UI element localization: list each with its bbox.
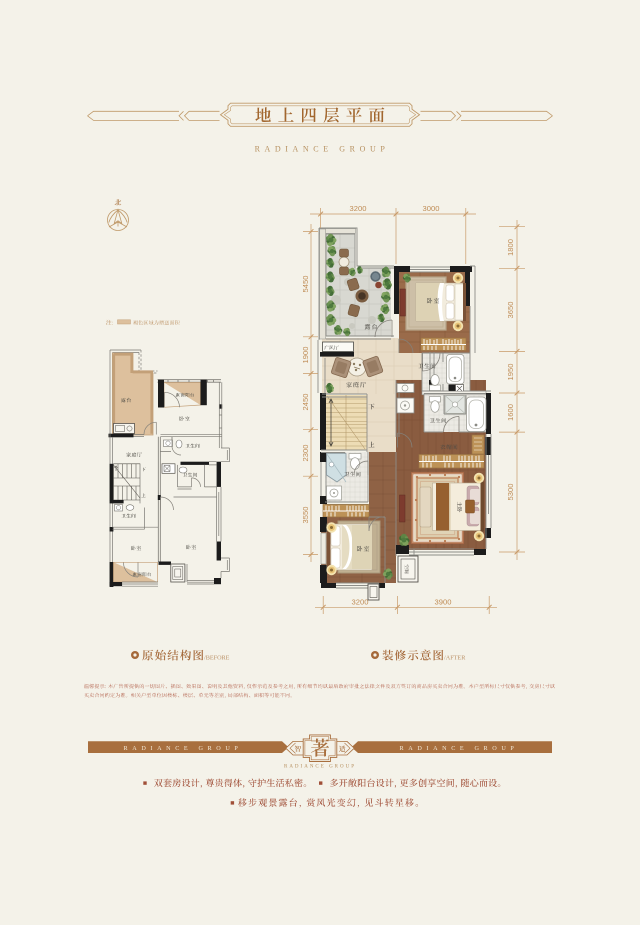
svg-text:3200: 3200 <box>352 598 369 607</box>
svg-text:RADIANCE GROUP: RADIANCE GROUP <box>255 145 390 154</box>
svg-text:2300: 2300 <box>301 445 310 462</box>
svg-text:1800: 1800 <box>506 239 515 256</box>
svg-text:/BEFORE: /BEFORE <box>204 655 230 662</box>
svg-text:1900: 1900 <box>301 347 310 364</box>
svg-text:RADIANCE GROUP: RADIANCE GROUP <box>400 745 519 752</box>
svg-text:RADIANCE GROUP: RADIANCE GROUP <box>284 764 356 769</box>
svg-text:RADIANCE GROUP: RADIANCE GROUP <box>124 745 243 752</box>
svg-text:5450: 5450 <box>301 276 310 293</box>
svg-text:/AFTER: /AFTER <box>444 655 466 662</box>
svg-text:3900: 3900 <box>435 598 452 607</box>
svg-text:3200: 3200 <box>350 204 367 213</box>
svg-text:3550: 3550 <box>301 507 310 524</box>
svg-text:3650: 3650 <box>506 302 515 319</box>
svg-text:1950: 1950 <box>506 364 515 381</box>
svg-text:5300: 5300 <box>506 484 515 501</box>
svg-text:1600: 1600 <box>506 404 515 421</box>
svg-text:2450: 2450 <box>301 394 310 411</box>
svg-text:3000: 3000 <box>423 204 440 213</box>
